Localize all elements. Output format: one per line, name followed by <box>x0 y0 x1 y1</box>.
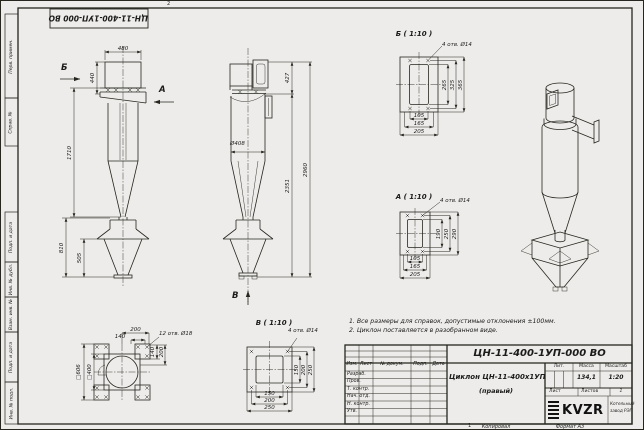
top-view-holes-note: 12 отв. Ø18 <box>159 331 192 337</box>
dim-cone-505: 505 <box>77 250 83 266</box>
dim-label: 200 <box>158 344 164 360</box>
view-arrow-b: Б <box>61 64 67 73</box>
dim-inlet-440: 440 <box>90 70 96 86</box>
dim-label: 200 <box>301 362 307 378</box>
top-stamp-text: ЦН-11-400-1УП-000 ВО <box>50 13 148 21</box>
company-name-line2: завод РЭП <box>610 408 633 413</box>
doc-number: ЦН-11-400-1УП-000 ВО <box>447 348 632 359</box>
tb-scale-value: 1:20 <box>600 375 632 382</box>
view-arrow-v: В <box>232 292 238 301</box>
margin-label-perv-primen: Перв. примен. <box>5 14 18 98</box>
tb-row-utv: Утв. <box>347 410 357 415</box>
tb-row-nkontr: Н. контр. <box>347 403 370 408</box>
isometric-view <box>521 83 599 291</box>
product-name: Циклон ЦН-11-400х1УП <box>449 374 543 382</box>
tb-sheets-value: 1 <box>610 390 632 395</box>
tb-row-razrab: Разраб. <box>347 373 366 378</box>
dim-square-inner: □400 <box>87 360 93 384</box>
tb-col-podp: Подп. <box>411 363 430 368</box>
tb-row-prov: Пров. <box>347 380 361 385</box>
note-line-1: 1. Все размеры для справок, допустимые о… <box>349 319 556 326</box>
tb-mass-label: Масса <box>573 365 600 370</box>
margin-label-sprav-no: Справ. № <box>5 98 18 146</box>
margin-label-vzam-inv: Взам. инв. № <box>5 297 18 332</box>
dim-label: 250 <box>308 362 314 378</box>
detail-v-holes-note: 4 отв. Ø14 <box>288 328 318 334</box>
dim-label: 105 <box>409 113 429 119</box>
side-view <box>223 48 312 305</box>
dim-label: 250 <box>444 226 450 242</box>
dim-lower-2351: 2351 <box>285 176 291 196</box>
tb-sheet-label: Лист <box>549 390 561 395</box>
margin-label-podp-data-1: Подп. и дата <box>5 212 18 262</box>
detail-v-title: В ( 1:10 ) <box>246 320 302 328</box>
dim-label: 290 <box>452 226 458 242</box>
dim-width-480: 480 <box>113 46 133 52</box>
tb-col-data: Дата <box>430 363 447 368</box>
detail-a-holes-note: 4 отв. Ø14 <box>440 198 470 204</box>
tb-row-tkontr: Т. контр. <box>347 388 369 393</box>
company-logo: KVZR <box>546 398 606 422</box>
company-name-line1: Котельный <box>610 401 634 406</box>
product-variant: (правый) <box>449 388 543 395</box>
margin-label-podp-data-2: Подп. и дата <box>5 332 18 382</box>
tb-col-dokum: № докум. <box>373 363 411 368</box>
note-line-2: 2. Циклон поставляется в разобранном вид… <box>349 328 498 335</box>
dim-label: 265 <box>442 77 448 93</box>
dim-label: 150 <box>294 362 300 378</box>
dim-diameter-408: Ø408 <box>230 141 245 147</box>
dim-label: 190 <box>436 226 442 242</box>
view-arrow-a: А <box>159 86 166 95</box>
tb-sheets-label: Листов <box>581 390 598 395</box>
dim-total-2960: 2960 <box>303 160 309 180</box>
tb-col-list: Лист <box>359 363 373 368</box>
dim-hopper-810: 810 <box>59 240 65 256</box>
dim-label: 150 <box>259 391 280 397</box>
dim-label: 140 <box>112 334 128 340</box>
dim-label: 325 <box>450 77 456 93</box>
fold-mark-top: 2 <box>167 1 170 7</box>
dim-label: 250 <box>259 405 280 411</box>
tb-scale-label: Масштаб <box>600 365 632 370</box>
dim-label: 205 <box>405 272 425 278</box>
dim-body-1710: 1710 <box>67 143 73 163</box>
dim-square-outer: □606 <box>76 360 82 384</box>
dim-label: 200 <box>259 398 280 404</box>
detail-a-title: А ( 1:10 ) <box>386 194 442 202</box>
dim-outlet-427: 427 <box>285 70 291 86</box>
copied-label: Копировал <box>471 424 521 430</box>
dim-label: 105 <box>405 256 425 262</box>
tb-col-izm: Изм. <box>345 363 359 368</box>
dim-label: 165 <box>405 264 425 270</box>
detail-b-holes-note: 4 отв. Ø14 <box>442 42 472 48</box>
dim-label: 165 <box>409 121 429 127</box>
dim-label: 140 <box>150 344 156 360</box>
tb-row-nachotd: Нач. отд. <box>347 395 370 400</box>
dim-label: 205 <box>409 129 429 135</box>
tb-mass-value: 134,1 <box>573 375 600 382</box>
detail-b-title: Б ( 1:10 ) <box>386 31 442 39</box>
format-label: Формат А3 <box>540 424 600 430</box>
logo-text: KVZR <box>562 403 604 418</box>
tb-lit-label: Лит. <box>545 365 573 370</box>
dim-label: 200 <box>125 327 146 333</box>
margin-label-inv-podl: Инв. № подл. <box>5 382 18 424</box>
drawing-sheet: ЦН-11-400-1УП-000 ВО Перв. примен. Справ… <box>0 0 644 430</box>
margin-label-inv-dubl: Инв. № дубл. <box>5 262 18 297</box>
dim-label: 365 <box>458 77 464 93</box>
